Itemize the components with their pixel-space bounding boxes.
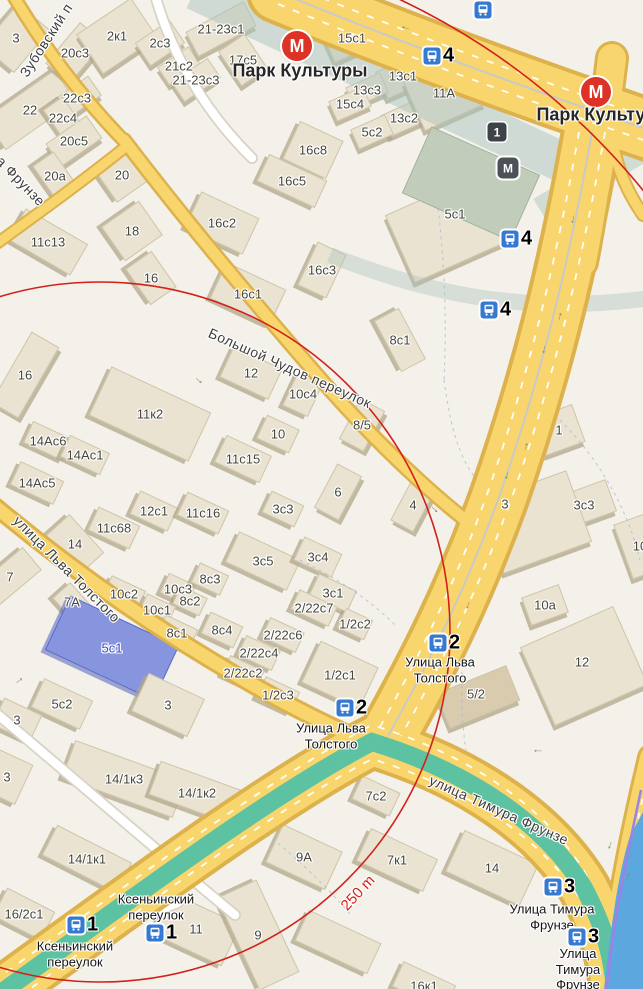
- metro-station-label: Парк Культуры: [536, 105, 643, 126]
- metro-entrance-icon[interactable]: М: [498, 158, 519, 179]
- metro-m-glyph: М: [503, 161, 513, 175]
- static-icons-layer: М Парк Культуры М Парк Культуры М 1 250 …: [0, 0, 643, 989]
- metro-m-glyph: М: [589, 82, 604, 103]
- exit-number: 1: [494, 125, 501, 139]
- metro-station-icon[interactable]: М: [581, 77, 611, 107]
- radius-label: 250 m: [338, 872, 379, 914]
- metro-station-label: Парк Культуры: [232, 61, 367, 82]
- map-canvas[interactable]: 32220с322с322с420с52к12с321с221-23с321-2…: [0, 0, 643, 989]
- metro-m-glyph: М: [290, 36, 305, 57]
- metro-exit-number-badge: 1: [488, 123, 507, 142]
- metro-station-icon[interactable]: М: [282, 31, 312, 61]
